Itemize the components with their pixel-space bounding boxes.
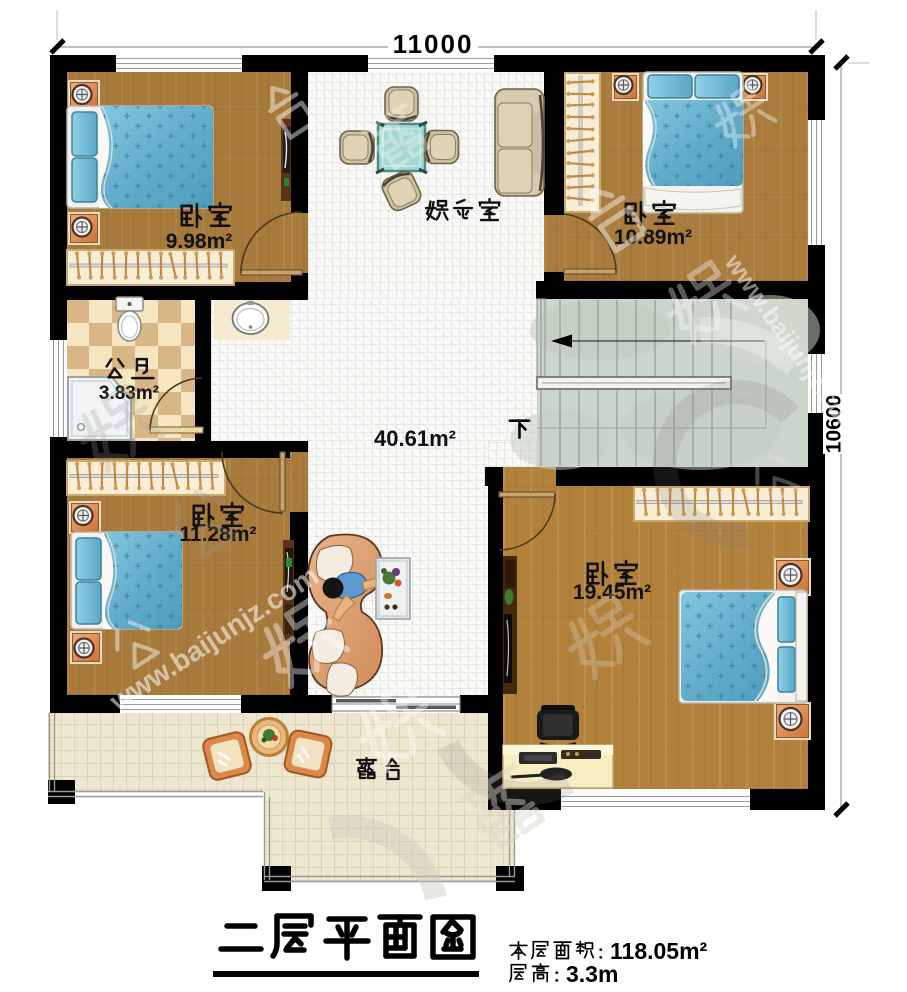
svg-text:19.45m²: 19.45m² xyxy=(573,581,651,604)
svg-text:40.61m²: 40.61m² xyxy=(374,426,456,451)
svg-text:3.3m: 3.3m xyxy=(566,961,618,987)
svg-text:11000: 11000 xyxy=(393,29,474,59)
svg-text:118.05m²: 118.05m² xyxy=(610,938,708,964)
svg-text:9.98m²: 9.98m² xyxy=(166,230,233,253)
